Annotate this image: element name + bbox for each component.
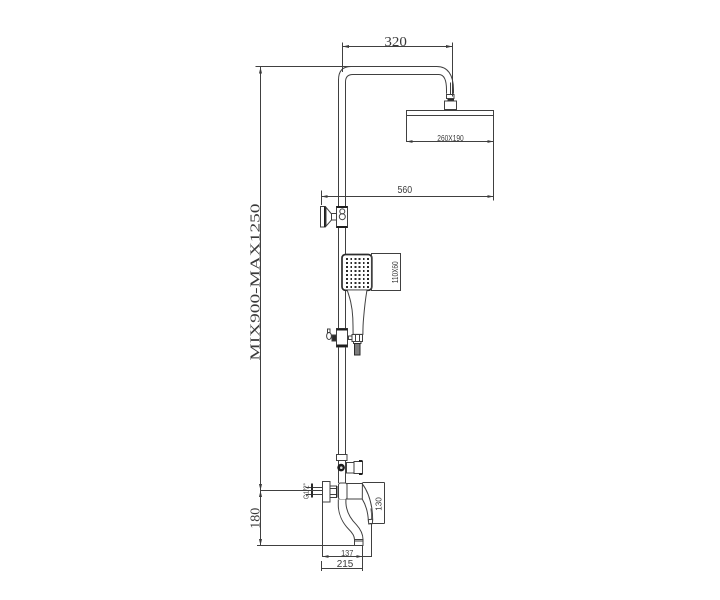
svg-text:110X60: 110X60 [391, 261, 400, 283]
svg-text:260X190: 260X190 [437, 134, 464, 143]
svg-text:MIX900-MAX1250: MIX900-MAX1250 [248, 204, 263, 361]
svg-text:180: 180 [248, 508, 263, 529]
svg-text:320: 320 [384, 35, 407, 50]
svg-text:130: 130 [375, 497, 384, 511]
svg-text:560: 560 [398, 185, 413, 196]
svg-text:G1/2”: G1/2” [301, 483, 310, 499]
